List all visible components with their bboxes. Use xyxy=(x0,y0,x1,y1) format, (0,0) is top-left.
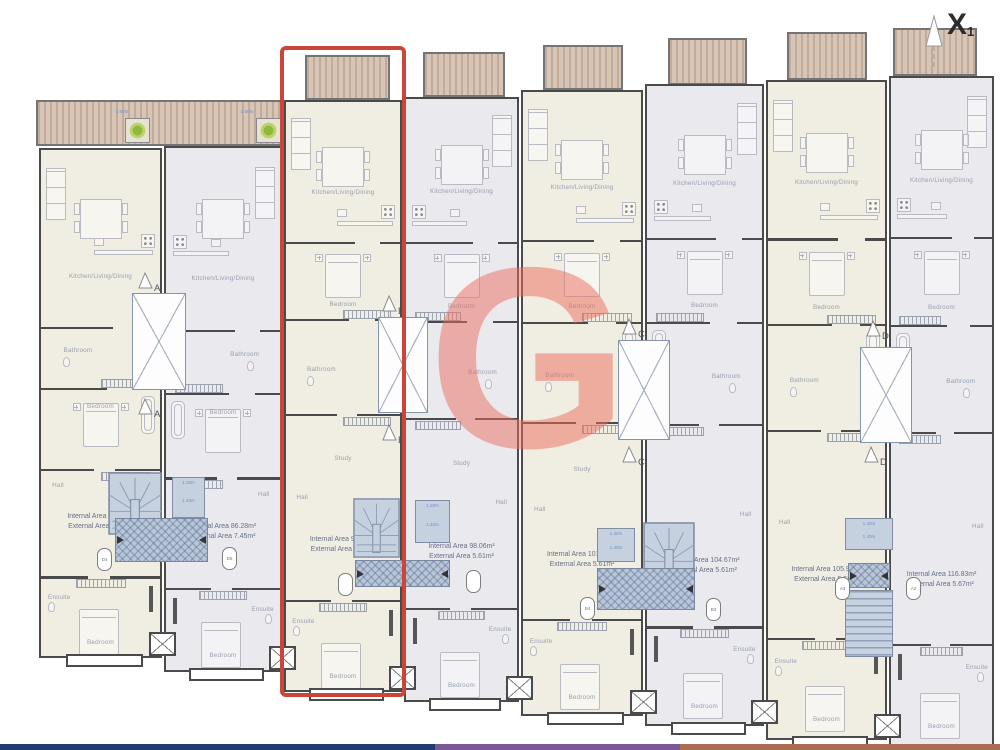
interior-wall xyxy=(232,588,281,590)
rear-shaft-box xyxy=(149,632,176,656)
bathroom-label: Bathroom xyxy=(946,378,975,385)
toilet-icon xyxy=(729,383,736,393)
lightwell-width-dim: 1.20m xyxy=(426,503,439,508)
chair-icon xyxy=(915,152,921,164)
section-marker: A xyxy=(138,272,160,294)
bedroom-label: Bedroom xyxy=(928,304,955,311)
interior-wall xyxy=(767,324,832,326)
bedroom-label: Bedroom xyxy=(87,639,114,646)
shelf-strip xyxy=(557,622,607,631)
bottom-ledge xyxy=(189,668,263,681)
interior-wall xyxy=(165,588,211,590)
balcony-deck xyxy=(668,38,747,85)
bedroom-label: Bedroom xyxy=(210,652,237,659)
chair-icon xyxy=(74,221,80,233)
bed-icon xyxy=(201,622,241,668)
internal-area-text: Internal Area 98.06m² xyxy=(428,542,494,552)
stair-landing xyxy=(597,568,695,610)
ensuite-toilet-icon xyxy=(530,646,537,656)
rear-shaft-box xyxy=(630,690,657,714)
door-marker xyxy=(466,570,481,593)
kitchen-label: Kitchen/Living/Dining xyxy=(69,273,132,280)
door-marker: B3 xyxy=(706,598,721,621)
hall-label: Hall xyxy=(534,506,546,513)
dining-table-icon xyxy=(80,199,122,239)
nightstand-icon xyxy=(962,251,970,259)
bedroom-label: Bedroom xyxy=(87,403,114,410)
kitchen-counter xyxy=(897,214,947,219)
interior-wall xyxy=(950,644,993,646)
section-letter: D xyxy=(880,457,887,468)
bedroom-label: Bedroom xyxy=(448,303,475,310)
chair-icon xyxy=(122,203,128,215)
entry-arrow-icon xyxy=(199,536,206,544)
interior-wall xyxy=(40,469,94,471)
interior-wall xyxy=(620,240,642,242)
shelf-strip xyxy=(415,421,462,430)
chair-icon xyxy=(963,152,969,164)
section-letter: A xyxy=(154,283,160,294)
interior-wall xyxy=(714,626,763,628)
bathroom-label: Bathroom xyxy=(790,377,819,384)
nightstand-icon xyxy=(243,409,251,417)
shelf-strip xyxy=(920,647,963,656)
door-marker: D5 xyxy=(222,547,237,570)
wardrobe-bar xyxy=(149,586,153,612)
study-label: Study xyxy=(573,466,590,473)
bathroom-label: Bathroom xyxy=(712,373,741,380)
sink-icon xyxy=(692,204,702,212)
chair-icon xyxy=(435,149,441,161)
door-marker: D4 xyxy=(97,548,112,571)
lightwell-width-dim: 1.20m xyxy=(182,480,195,485)
footer-bar-purple xyxy=(435,744,680,750)
section-letter: C xyxy=(638,329,645,340)
chair-icon xyxy=(483,149,489,161)
nightstand-icon xyxy=(799,252,807,260)
sink-icon xyxy=(931,202,941,210)
chair-icon xyxy=(726,139,732,151)
bed-icon xyxy=(683,673,723,719)
bathroom-label: Bathroom xyxy=(545,372,574,379)
dining-table-icon xyxy=(806,133,848,173)
wardrobe-bar xyxy=(898,654,902,680)
chair-icon xyxy=(74,203,80,215)
interior-wall xyxy=(498,242,518,244)
sofa-icon xyxy=(967,96,987,148)
sofa-icon xyxy=(773,100,793,152)
chair-icon xyxy=(555,162,561,174)
bed-icon xyxy=(924,251,960,295)
wardrobe-bar xyxy=(173,598,177,624)
section-letter: C xyxy=(638,457,645,468)
ensuite-label: Ensuite xyxy=(966,664,988,671)
sofa-icon xyxy=(528,109,548,161)
nightstand-icon xyxy=(73,403,81,411)
shelf-strip xyxy=(199,591,247,600)
bathroom-label: Bathroom xyxy=(64,347,93,354)
kitchen-label: Kitchen/Living/Dining xyxy=(430,188,493,195)
dining-table-icon xyxy=(921,130,963,170)
bottom-ledge xyxy=(671,722,746,735)
lightwell-depth-dim: 1.40m xyxy=(182,498,195,503)
wardrobe-bar xyxy=(630,629,634,655)
kitchen-label: Kitchen/Living/Dining xyxy=(191,275,254,282)
bathroom-label: Bathroom xyxy=(468,369,497,376)
ensuite-toilet-icon xyxy=(775,666,782,676)
planter-dimension: 1.60m xyxy=(241,109,254,114)
interior-wall xyxy=(592,619,642,621)
hob-icon xyxy=(173,235,187,249)
ensuite-toilet-icon xyxy=(747,654,754,664)
bedroom-label: Bedroom xyxy=(448,682,475,689)
interior-wall xyxy=(646,626,693,628)
balcony-deck xyxy=(787,32,867,80)
interior-wall xyxy=(522,619,570,621)
bed-icon xyxy=(920,693,960,739)
bedroom-label: Bedroom xyxy=(813,304,840,311)
interior-wall xyxy=(522,322,588,324)
chair-icon xyxy=(483,167,489,179)
toilet-icon xyxy=(485,379,492,389)
bedroom-label: Bedroom xyxy=(569,303,596,310)
sofa-icon xyxy=(737,103,757,155)
dining-table-icon xyxy=(561,140,603,180)
interior-wall xyxy=(522,422,576,424)
chair-icon xyxy=(678,157,684,169)
ensuite-toilet-icon xyxy=(502,634,509,644)
ensuite-label: Ensuite xyxy=(775,658,797,665)
entry-arrow-icon xyxy=(117,536,124,544)
chair-icon xyxy=(800,137,806,149)
nightstand-icon xyxy=(914,251,922,259)
chair-icon xyxy=(122,221,128,233)
bedroom-label: Bedroom xyxy=(210,409,237,416)
bed-icon xyxy=(79,609,119,655)
interior-wall xyxy=(255,393,281,395)
stair-landing xyxy=(115,518,208,562)
bedroom-label: Bedroom xyxy=(928,723,955,730)
rear-shaft-box xyxy=(506,676,533,700)
section-marker: C xyxy=(622,318,645,340)
lightwell-depth-dim: 1.40m xyxy=(863,534,876,539)
chair-icon xyxy=(244,221,250,233)
shelf-strip xyxy=(438,611,485,620)
wardrobe-bar xyxy=(413,618,417,644)
entry-arrow-icon xyxy=(599,585,606,593)
bed-icon xyxy=(805,686,845,732)
door-marker: A3 xyxy=(835,577,850,600)
entry-arrow-icon xyxy=(441,570,448,578)
straight-stair-icon xyxy=(845,590,893,657)
hob-icon xyxy=(897,198,911,212)
nightstand-icon xyxy=(195,409,203,417)
ensuite-label: Ensuite xyxy=(733,646,755,653)
hob-icon xyxy=(412,205,426,219)
kitchen-counter xyxy=(412,221,467,226)
hall-label: Hall xyxy=(972,523,984,530)
door-marker: B4 xyxy=(580,597,595,620)
toilet-icon xyxy=(790,387,797,397)
interior-wall xyxy=(237,477,281,479)
kitchen-counter xyxy=(94,250,153,255)
chair-icon xyxy=(196,203,202,215)
lightwell-width-dim: 1.20m xyxy=(863,521,876,526)
shelf-strip xyxy=(656,313,704,322)
section-triangle-icon xyxy=(866,320,881,342)
ensuite-label: Ensuite xyxy=(48,594,70,601)
nightstand-icon xyxy=(554,253,562,261)
entry-arrow-icon xyxy=(686,585,693,593)
dining-table-icon xyxy=(202,199,244,239)
interior-wall xyxy=(890,237,952,239)
kitchen-counter xyxy=(654,216,711,221)
hob-icon xyxy=(866,199,880,213)
section-flag-number: 1 xyxy=(967,24,974,39)
interior-wall xyxy=(40,327,113,329)
nightstand-icon xyxy=(847,252,855,260)
section-marker-x1: X 1 xyxy=(921,10,974,72)
hob-icon xyxy=(654,200,668,214)
hall-label: Hall xyxy=(495,499,507,506)
interior-wall xyxy=(405,608,450,610)
kitchen-label: Kitchen/Living/Dining xyxy=(673,180,736,187)
sink-icon xyxy=(820,203,830,211)
footer-bar-brown xyxy=(680,744,1000,750)
bed-icon xyxy=(444,254,480,298)
chair-icon xyxy=(726,157,732,169)
bed-icon xyxy=(564,253,600,297)
bedroom-label: Bedroom xyxy=(691,703,718,710)
chair-icon xyxy=(963,134,969,146)
section-marker: D xyxy=(866,320,889,342)
kitchen-counter xyxy=(576,218,634,223)
interior-wall xyxy=(471,608,518,610)
section-marker: D xyxy=(864,446,887,468)
interior-wall xyxy=(110,576,161,578)
interior-wall xyxy=(890,644,931,646)
lift-shaft-void xyxy=(860,347,912,443)
interior-wall xyxy=(405,242,473,244)
ensuite-label: Ensuite xyxy=(251,606,273,613)
dining-table-icon xyxy=(441,145,483,185)
chair-icon xyxy=(848,137,854,149)
interior-wall xyxy=(737,322,763,324)
balcony-deck xyxy=(423,52,505,97)
floorplan-screenshot: 1.60m1.60mKitchen/Living/DiningBedroomBa… xyxy=(0,0,1000,750)
planter-icon xyxy=(256,118,281,143)
ensuite-toilet-icon xyxy=(977,672,984,682)
section-triangle-icon xyxy=(138,398,153,420)
kitchen-label: Kitchen/Living/Dining xyxy=(550,184,613,191)
bed-icon xyxy=(687,251,723,295)
chair-icon xyxy=(915,134,921,146)
chair-icon xyxy=(435,167,441,179)
lightwell-depth-dim: 1.40m xyxy=(610,545,623,550)
selected-unit-highlight-box xyxy=(280,46,406,697)
study-label: Study xyxy=(453,460,470,467)
interior-wall xyxy=(890,325,947,327)
toilet-icon xyxy=(963,388,970,398)
chair-icon xyxy=(196,221,202,233)
sink-icon xyxy=(211,239,221,247)
bathtub-icon xyxy=(171,401,185,439)
bathtub-inner xyxy=(174,404,182,436)
chair-icon xyxy=(800,155,806,167)
bed-icon xyxy=(809,252,845,296)
section-triangle-icon xyxy=(622,318,637,340)
hall-label: Hall xyxy=(52,482,64,489)
chair-icon xyxy=(848,155,854,167)
hall-label: Hall xyxy=(258,491,270,498)
interior-wall xyxy=(719,424,763,426)
toilet-icon xyxy=(63,357,70,367)
interior-wall xyxy=(865,238,886,240)
kitchen-counter xyxy=(173,251,229,256)
door-marker: A2 xyxy=(906,577,921,600)
kitchen-label: Kitchen/Living/Dining xyxy=(910,177,973,184)
sofa-icon xyxy=(46,168,66,220)
dining-table-icon xyxy=(684,135,726,175)
sink-icon xyxy=(576,206,586,214)
planter-icon xyxy=(125,118,150,143)
section-triangle-icon xyxy=(864,446,879,468)
balcony-deck xyxy=(36,100,283,146)
ensuite-toilet-icon xyxy=(48,602,55,612)
entry-arrow-icon xyxy=(850,572,857,580)
shelf-strip xyxy=(76,579,126,588)
section-letter: D xyxy=(882,331,889,342)
kitchen-counter xyxy=(820,215,878,220)
chair-icon xyxy=(555,144,561,156)
sofa-icon xyxy=(255,167,275,219)
bathroom-label: Bathroom xyxy=(230,351,259,358)
nightstand-icon xyxy=(434,254,442,262)
sink-icon xyxy=(94,238,104,246)
section-triangle-icon xyxy=(138,272,153,294)
interior-wall xyxy=(954,432,993,434)
chair-icon xyxy=(678,139,684,151)
shelf-strip xyxy=(802,641,851,650)
interior-wall xyxy=(522,240,594,242)
planter-dimension: 1.60m xyxy=(116,109,129,114)
nightstand-icon xyxy=(677,251,685,259)
section-marker: C xyxy=(622,446,645,468)
interior-wall xyxy=(646,322,710,324)
interior-wall xyxy=(40,388,107,390)
bottom-ledge xyxy=(429,698,502,711)
interior-wall xyxy=(475,418,518,420)
section-triangle-icon xyxy=(622,446,637,468)
balcony-deck xyxy=(543,45,623,90)
ensuite-label: Ensuite xyxy=(489,626,511,633)
interior-wall xyxy=(493,321,518,323)
lightwell-depth-dim: 1.40m xyxy=(426,522,439,527)
bedroom-label: Bedroom xyxy=(691,302,718,309)
interior-wall xyxy=(767,238,838,240)
bed-icon xyxy=(440,652,480,698)
kitchen-label: Kitchen/Living/Dining xyxy=(795,179,858,186)
ensuite-toilet-icon xyxy=(265,614,272,624)
interior-wall xyxy=(40,576,88,578)
hall-label: Hall xyxy=(779,519,791,526)
interior-wall xyxy=(767,430,821,432)
hob-icon xyxy=(622,202,636,216)
interior-wall xyxy=(970,325,993,327)
shelf-strip xyxy=(680,629,728,638)
nightstand-icon xyxy=(602,253,610,261)
section-flag-label: X xyxy=(947,10,967,40)
chair-icon xyxy=(244,203,250,215)
interior-wall xyxy=(646,238,716,240)
nightstand-icon xyxy=(121,403,129,411)
shelf-strip xyxy=(899,316,942,325)
rear-shaft-box xyxy=(874,714,901,738)
hall-label: Hall xyxy=(740,511,752,518)
interior-wall xyxy=(405,418,456,420)
sofa-icon xyxy=(492,115,512,167)
floorplan-drawing: 1.60m1.60mKitchen/Living/DiningBedroomBa… xyxy=(0,0,1000,750)
bottom-ledge xyxy=(66,654,144,667)
section-marker: A xyxy=(138,398,160,420)
interior-wall xyxy=(767,638,815,640)
bed-icon xyxy=(560,664,600,710)
interior-wall xyxy=(974,237,993,239)
chair-icon xyxy=(603,162,609,174)
toilet-icon xyxy=(247,361,254,371)
chair-icon xyxy=(603,144,609,156)
nightstand-icon xyxy=(482,254,490,262)
interior-wall xyxy=(742,238,763,240)
bedroom-label: Bedroom xyxy=(569,694,596,701)
bottom-ledge xyxy=(547,712,624,725)
sink-icon xyxy=(450,209,460,217)
rear-shaft-box xyxy=(751,700,778,724)
entry-arrow-icon xyxy=(881,572,888,580)
section-letter: A xyxy=(154,409,160,420)
footer-bar-navy xyxy=(0,744,435,750)
ensuite-label: Ensuite xyxy=(530,638,552,645)
toilet-icon xyxy=(545,382,552,392)
section-flag-icon xyxy=(921,10,947,72)
interior-wall xyxy=(165,393,229,395)
bedroom-label: Bedroom xyxy=(813,716,840,723)
nightstand-icon xyxy=(725,251,733,259)
lift-shaft-void xyxy=(132,293,186,390)
wardrobe-bar xyxy=(654,636,658,662)
lift-shaft-void xyxy=(618,340,670,440)
lightwell-width-dim: 1.20m xyxy=(610,531,623,536)
interior-wall xyxy=(260,330,281,332)
hob-icon xyxy=(141,234,155,248)
